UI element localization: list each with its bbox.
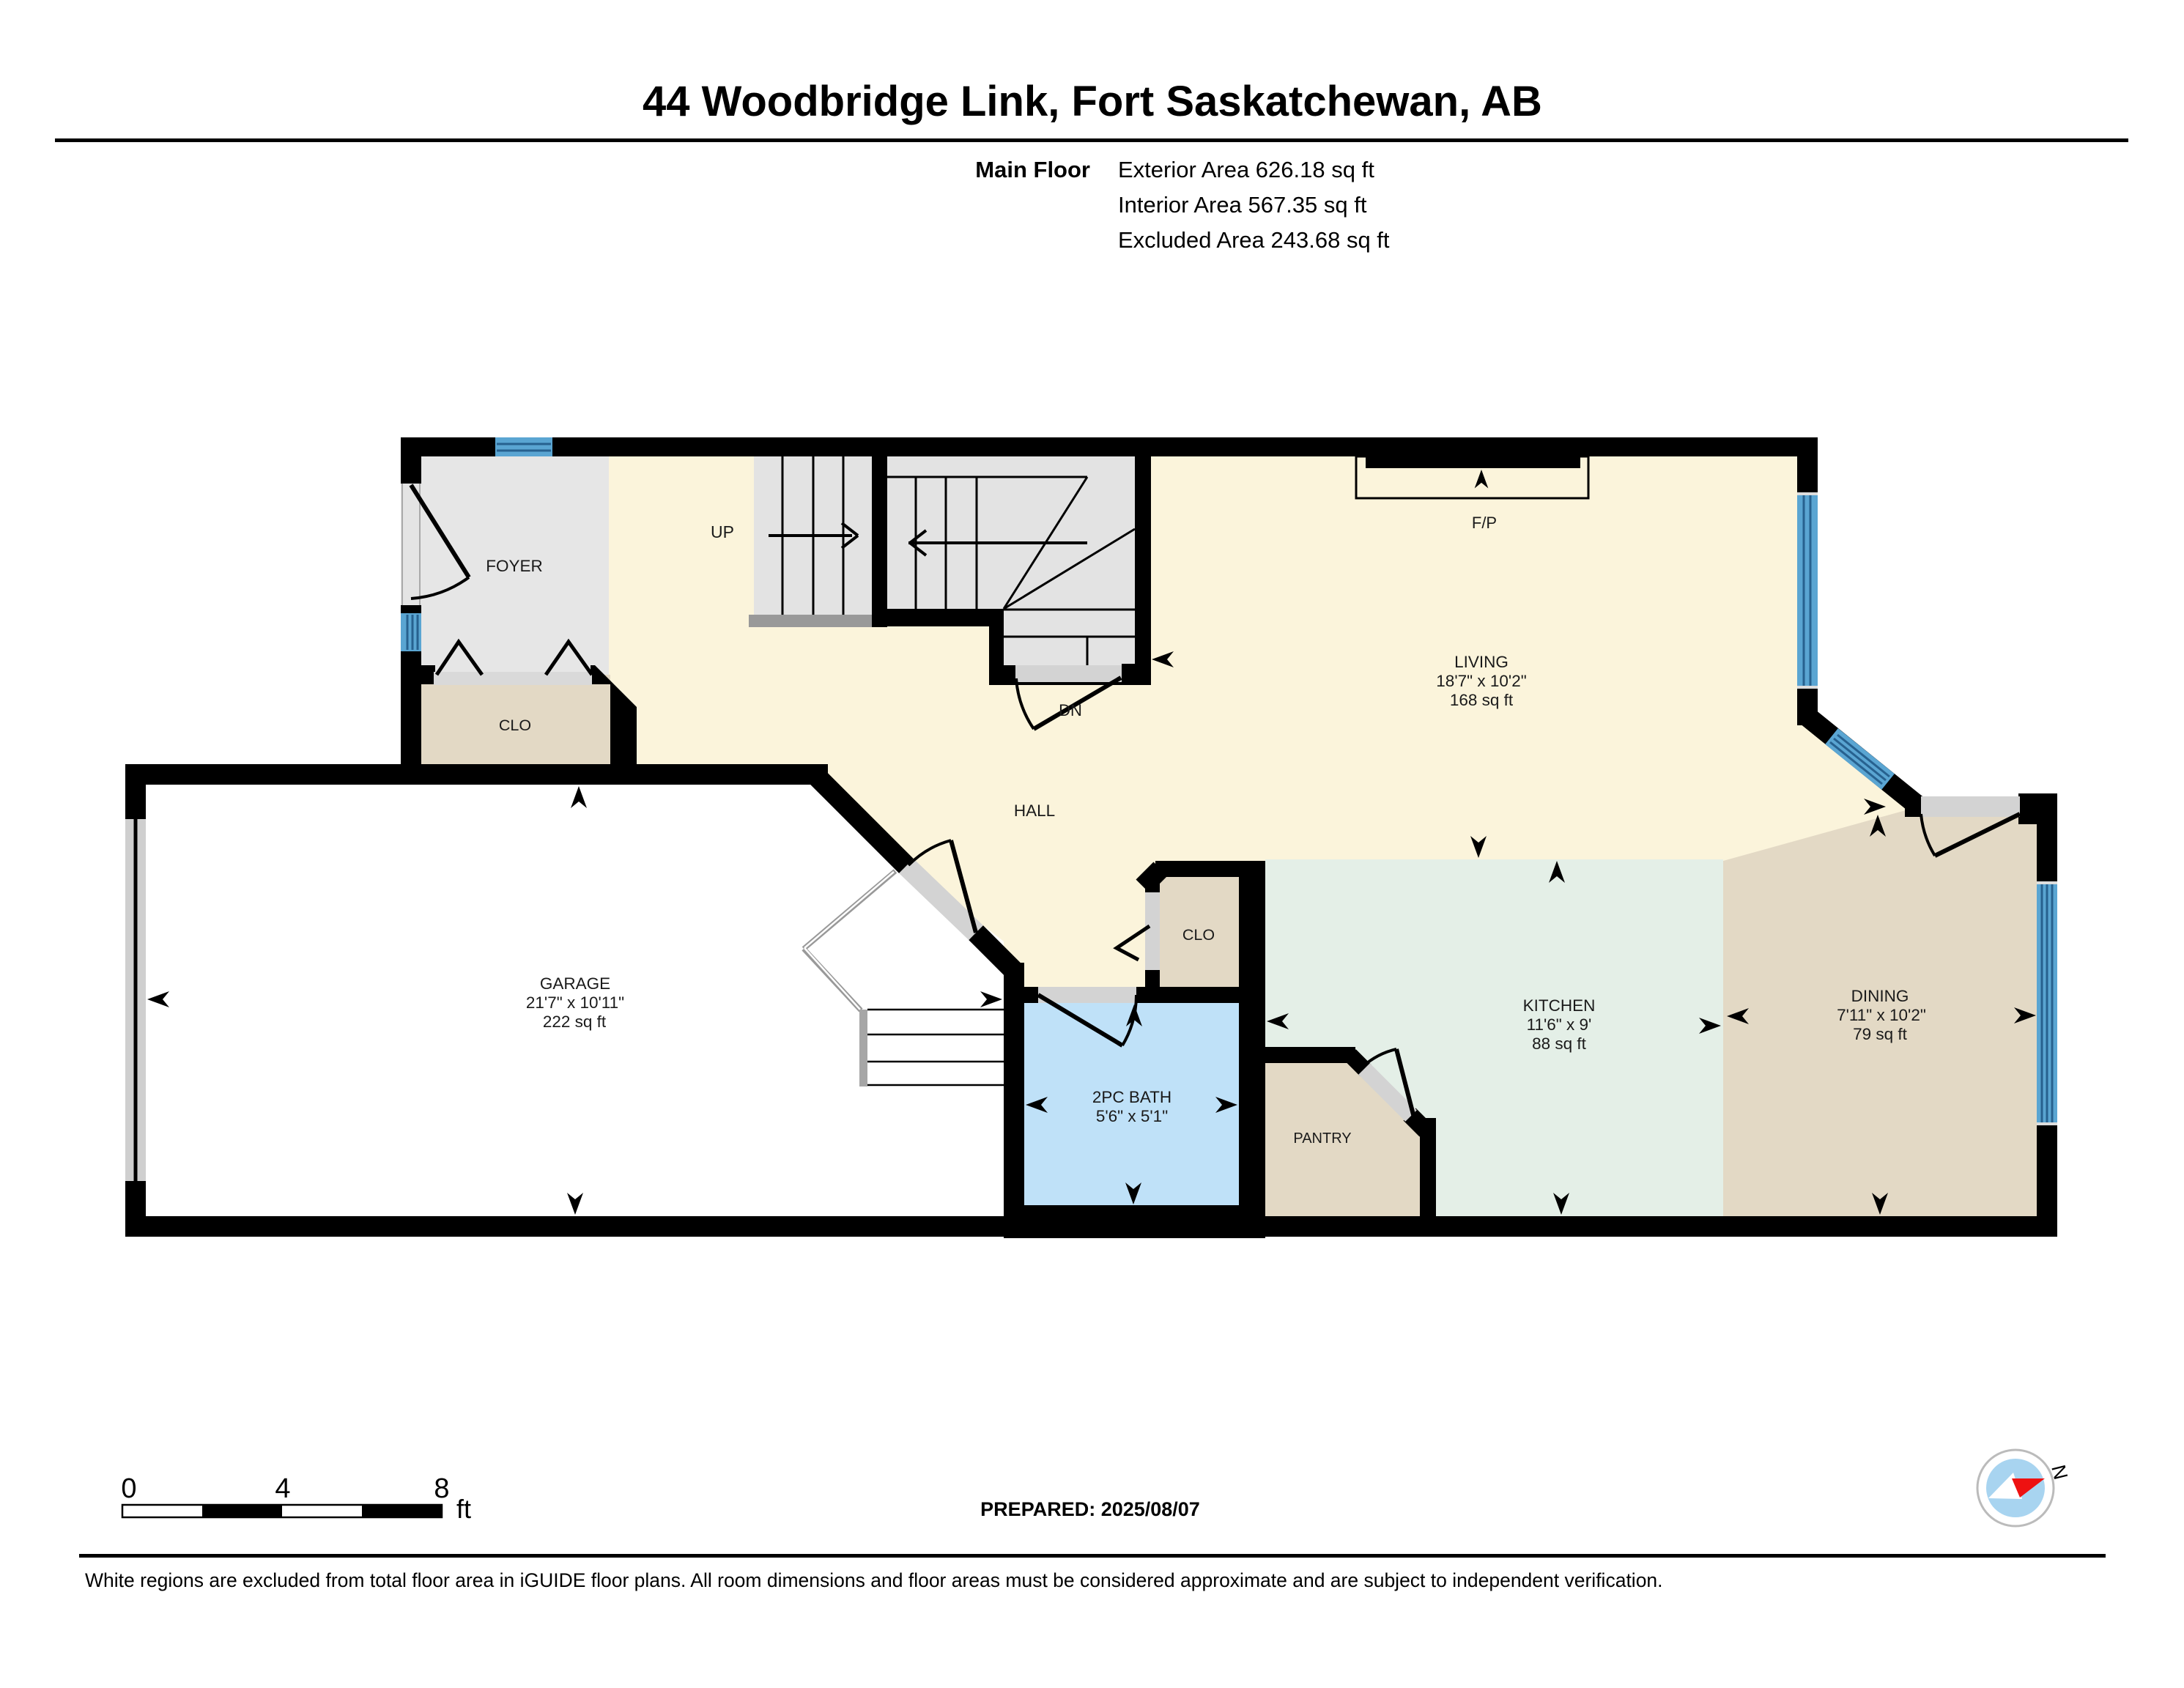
svg-text:CLO: CLO <box>499 717 531 734</box>
svg-text:CLO: CLO <box>1182 926 1215 944</box>
svg-text:GARAGE: GARAGE <box>540 974 610 993</box>
svg-text:Main Floor: Main Floor <box>975 157 1090 182</box>
svg-text:8: 8 <box>434 1473 449 1504</box>
svg-text:222 sq ft: 222 sq ft <box>543 1013 607 1031</box>
svg-text:5'6" x 5'1": 5'6" x 5'1" <box>1096 1107 1168 1125</box>
svg-text:White regions are excluded fro: White regions are excluded from total fl… <box>85 1569 1663 1591</box>
svg-text:79 sq ft: 79 sq ft <box>1853 1025 1908 1043</box>
svg-text:0: 0 <box>121 1473 136 1504</box>
svg-text:KITCHEN: KITCHEN <box>1523 996 1596 1015</box>
svg-text:UP: UP <box>711 522 734 541</box>
svg-text:LIVING: LIVING <box>1454 653 1509 671</box>
svg-text:18'7" x 10'2": 18'7" x 10'2" <box>1436 672 1526 690</box>
svg-text:ft: ft <box>456 1494 471 1524</box>
svg-text:7'11" x 10'2": 7'11" x 10'2" <box>1837 1006 1926 1024</box>
svg-text:168 sq ft: 168 sq ft <box>1450 691 1514 709</box>
svg-text:2PC BATH: 2PC BATH <box>1092 1088 1171 1106</box>
svg-text:F/P: F/P <box>1472 514 1497 532</box>
svg-text:44 Woodbridge Link, Fort Saska: 44 Woodbridge Link, Fort Saskatchewan, A… <box>643 78 1542 125</box>
svg-text:Interior Area 567.35 sq ft: Interior Area 567.35 sq ft <box>1118 192 1367 218</box>
svg-text:PANTRY: PANTRY <box>1293 1130 1351 1147</box>
svg-text:88 sq ft: 88 sq ft <box>1532 1034 1587 1053</box>
svg-text:Exterior Area 626.18 sq ft: Exterior Area 626.18 sq ft <box>1118 157 1374 182</box>
svg-text:DN: DN <box>1059 701 1082 719</box>
svg-text:Excluded Area 243.68 sq ft: Excluded Area 243.68 sq ft <box>1118 227 1390 253</box>
svg-text:PREPARED: 2025/08/07: PREPARED: 2025/08/07 <box>980 1498 1200 1520</box>
svg-text:FOYER: FOYER <box>486 557 543 575</box>
svg-text:HALL: HALL <box>1014 802 1055 820</box>
svg-text:11'6" x 9': 11'6" x 9' <box>1527 1015 1592 1034</box>
svg-text:21'7" x 10'11": 21'7" x 10'11" <box>526 993 624 1012</box>
svg-text:4: 4 <box>275 1473 290 1504</box>
svg-text:DINING: DINING <box>1851 987 1909 1005</box>
